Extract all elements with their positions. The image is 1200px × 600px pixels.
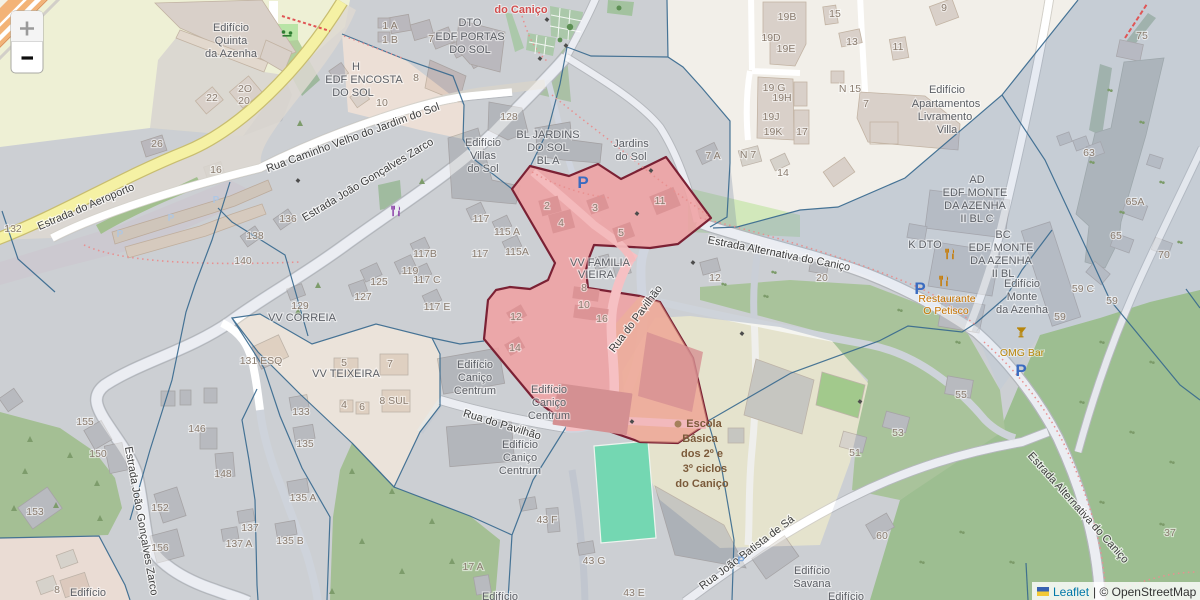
svg-text:P: P	[1015, 361, 1026, 380]
svg-text:Edifício: Edifício	[465, 137, 501, 149]
svg-text:N 15: N 15	[839, 83, 861, 95]
svg-text:DO SOL: DO SOL	[527, 142, 569, 154]
svg-text:26: 26	[151, 138, 163, 150]
svg-text:dos 2º e: dos 2º e	[681, 448, 723, 460]
svg-text:63: 63	[1083, 147, 1095, 159]
svg-text:59: 59	[1054, 311, 1066, 323]
svg-text:4: 4	[341, 399, 347, 411]
svg-text:DO SOL: DO SOL	[449, 44, 491, 56]
svg-text:133: 133	[292, 406, 310, 418]
svg-text:do Caniço: do Caniço	[675, 478, 728, 490]
svg-text:7 A: 7 A	[705, 150, 720, 162]
svg-text:19J: 19J	[763, 111, 780, 123]
svg-text:DA AZENHA: DA AZENHA	[944, 200, 1006, 212]
svg-text:17: 17	[796, 126, 808, 138]
svg-text:129: 129	[291, 300, 309, 312]
svg-text:P: P	[577, 173, 588, 192]
svg-text:119: 119	[402, 265, 419, 277]
svg-text:Caniço: Caniço	[503, 452, 537, 464]
svg-text:Edifício: Edifício	[70, 587, 106, 599]
svg-text:140: 140	[234, 255, 252, 267]
svg-text:132: 132	[4, 223, 22, 235]
svg-text:153: 153	[26, 506, 44, 518]
svg-text:117: 117	[473, 213, 490, 225]
svg-text:Edifício: Edifício	[482, 591, 518, 600]
svg-text:10: 10	[578, 299, 590, 311]
svg-text:N 7: N 7	[740, 149, 757, 161]
svg-text:155: 155	[76, 416, 94, 428]
svg-text:Edifício: Edifício	[929, 84, 965, 96]
svg-text:DA AZENHA: DA AZENHA	[970, 255, 1032, 267]
svg-text:VV TEIXEIRA: VV TEIXEIRA	[312, 368, 380, 380]
svg-text:65: 65	[1110, 230, 1122, 242]
svg-text:do Caniço: do Caniço	[494, 4, 547, 16]
svg-text:2: 2	[544, 200, 550, 212]
svg-text:11: 11	[655, 195, 666, 207]
svg-text:VV FAMILIA: VV FAMILIA	[570, 257, 631, 269]
svg-text:22: 22	[206, 92, 218, 104]
svg-text:P: P	[213, 195, 220, 206]
svg-text:125: 125	[370, 276, 388, 288]
svg-text:135: 135	[296, 438, 314, 450]
svg-text:16: 16	[596, 313, 608, 325]
svg-text:156: 156	[151, 542, 169, 554]
svg-text:146: 146	[188, 423, 206, 435]
svg-text:Escola: Escola	[686, 418, 722, 430]
svg-text:135 A: 135 A	[290, 492, 317, 504]
svg-text:da Azenha: da Azenha	[205, 48, 258, 60]
svg-text:7: 7	[387, 358, 393, 370]
svg-text:117: 117	[472, 248, 489, 260]
svg-text:117 E: 117 E	[424, 301, 451, 313]
svg-text:148: 148	[214, 468, 232, 480]
svg-text:Centrum: Centrum	[454, 385, 496, 397]
svg-text:135 B: 135 B	[276, 535, 303, 547]
svg-text:17 A: 17 A	[462, 561, 483, 573]
svg-text:Villa: Villa	[937, 124, 958, 136]
svg-text:5: 5	[618, 227, 624, 239]
svg-text:do Sol: do Sol	[467, 163, 498, 175]
svg-text:75: 75	[1136, 30, 1148, 42]
svg-text:Leaflet: Leaflet	[1053, 585, 1090, 599]
svg-text:EDF ENCOSTA: EDF ENCOSTA	[325, 74, 403, 86]
svg-text:EDF MONTE: EDF MONTE	[969, 242, 1034, 254]
svg-text:115A: 115A	[505, 246, 529, 258]
svg-text:P: P	[737, 555, 744, 567]
svg-text:14: 14	[509, 342, 521, 354]
svg-text:VIEIRA: VIEIRA	[578, 269, 615, 281]
svg-text:P: P	[168, 213, 175, 224]
svg-text:do Sol: do Sol	[615, 151, 646, 163]
svg-text:H: H	[352, 61, 360, 73]
svg-text:60: 60	[876, 530, 888, 542]
svg-text:20: 20	[816, 272, 828, 284]
svg-text:14: 14	[777, 167, 789, 179]
svg-text:Caniço: Caniço	[532, 397, 566, 409]
svg-text:8: 8	[581, 282, 587, 294]
svg-text:9: 9	[941, 2, 947, 14]
svg-text:5: 5	[341, 357, 347, 369]
svg-text:Livramento: Livramento	[918, 111, 972, 123]
svg-text:43 E: 43 E	[623, 587, 645, 599]
svg-text:OMG Bar: OMG Bar	[1000, 347, 1045, 359]
svg-text:10: 10	[376, 97, 388, 109]
svg-text:59: 59	[1106, 295, 1118, 307]
svg-text:Edifício: Edifício	[457, 359, 493, 371]
svg-text:11: 11	[893, 41, 904, 53]
svg-text:37: 37	[1164, 527, 1176, 539]
svg-text:Apartamentos: Apartamentos	[912, 98, 981, 110]
svg-text:AD: AD	[969, 174, 984, 186]
svg-text:Savana: Savana	[793, 578, 831, 590]
svg-text:150: 150	[89, 448, 107, 460]
svg-text:1 B: 1 B	[382, 34, 398, 46]
svg-text:117B: 117B	[413, 248, 437, 260]
svg-text:51: 51	[849, 447, 861, 459]
svg-text:128: 128	[500, 111, 518, 123]
svg-text:3: 3	[592, 202, 598, 214]
svg-text:EDF MONTE: EDF MONTE	[943, 187, 1008, 199]
svg-text:Básica: Básica	[682, 433, 718, 445]
svg-text:70: 70	[1158, 249, 1170, 261]
svg-text:15: 15	[829, 8, 841, 20]
svg-text:43 F: 43 F	[536, 514, 557, 526]
svg-text:Jardins: Jardins	[613, 138, 649, 150]
svg-text:Edifício: Edifício	[828, 591, 864, 600]
svg-text:137 A: 137 A	[226, 538, 253, 550]
svg-text:16: 16	[210, 164, 222, 176]
svg-text:59 C: 59 C	[1072, 283, 1095, 295]
svg-text:138: 138	[246, 230, 264, 242]
svg-text:EDF PORTAS: EDF PORTAS	[435, 31, 504, 43]
svg-text:12: 12	[510, 311, 522, 323]
svg-text:Edifício: Edifício	[1004, 278, 1040, 290]
svg-text:K DTO: K DTO	[908, 239, 942, 251]
svg-text:Edifício: Edifício	[213, 22, 249, 34]
svg-text:Villas: Villas	[470, 150, 497, 162]
svg-text:115 A: 115 A	[494, 226, 520, 238]
svg-text:131 ESQ: 131 ESQ	[240, 355, 283, 367]
svg-text:da Azenha: da Azenha	[996, 304, 1049, 316]
svg-text:152: 152	[151, 502, 169, 514]
svg-text:Centrum: Centrum	[528, 410, 570, 422]
svg-text:8: 8	[54, 584, 60, 596]
svg-text:BL JARDINS: BL JARDINS	[516, 129, 579, 141]
svg-text:65A: 65A	[1126, 196, 1145, 208]
svg-text:II BL C: II BL C	[960, 213, 993, 225]
svg-text:2O: 2O	[238, 83, 252, 95]
svg-text:4: 4	[558, 217, 564, 229]
svg-text:53: 53	[892, 427, 904, 439]
svg-text:19E: 19E	[777, 43, 796, 55]
svg-text:43 G: 43 G	[583, 555, 606, 567]
svg-text:Edifício: Edifício	[502, 439, 538, 451]
svg-text:Restaurante: Restaurante	[918, 293, 975, 305]
svg-text:19H: 19H	[772, 92, 791, 104]
svg-text:VV CORREIA: VV CORREIA	[268, 312, 337, 324]
svg-text:3º ciclos: 3º ciclos	[683, 463, 727, 475]
svg-text:12: 12	[709, 272, 721, 284]
svg-text:1 A: 1 A	[382, 20, 397, 32]
svg-text:DO SOL: DO SOL	[332, 87, 374, 99]
svg-text:13: 13	[846, 36, 858, 48]
svg-text:DTO: DTO	[458, 17, 481, 29]
svg-text:137: 137	[241, 522, 259, 534]
svg-text:8 SUL: 8 SUL	[379, 395, 408, 407]
svg-text:BC: BC	[995, 229, 1010, 241]
svg-text:Edifício: Edifício	[531, 384, 567, 396]
svg-text:Monte: Monte	[1007, 291, 1038, 303]
svg-text:20: 20	[238, 95, 250, 107]
svg-text:Quinta: Quinta	[215, 35, 248, 47]
svg-text:55: 55	[955, 389, 967, 401]
svg-text:Caniço: Caniço	[458, 372, 492, 384]
svg-text:Edifício: Edifício	[794, 565, 830, 577]
svg-text:| © OpenStreetMap: | © OpenStreetMap	[1093, 585, 1197, 599]
svg-text:19B: 19B	[778, 11, 797, 23]
svg-text:6: 6	[359, 401, 365, 413]
svg-text:Centrum: Centrum	[499, 465, 541, 477]
svg-text:19K: 19K	[764, 126, 783, 138]
svg-text:P: P	[117, 229, 124, 240]
svg-text:7: 7	[428, 33, 434, 45]
svg-text:8: 8	[413, 72, 419, 84]
svg-text:O Petisco: O Petisco	[923, 305, 969, 317]
svg-text:136: 136	[279, 213, 297, 225]
svg-text:BL A: BL A	[537, 155, 560, 167]
svg-text:7: 7	[863, 98, 869, 110]
svg-text:127: 127	[354, 291, 372, 303]
